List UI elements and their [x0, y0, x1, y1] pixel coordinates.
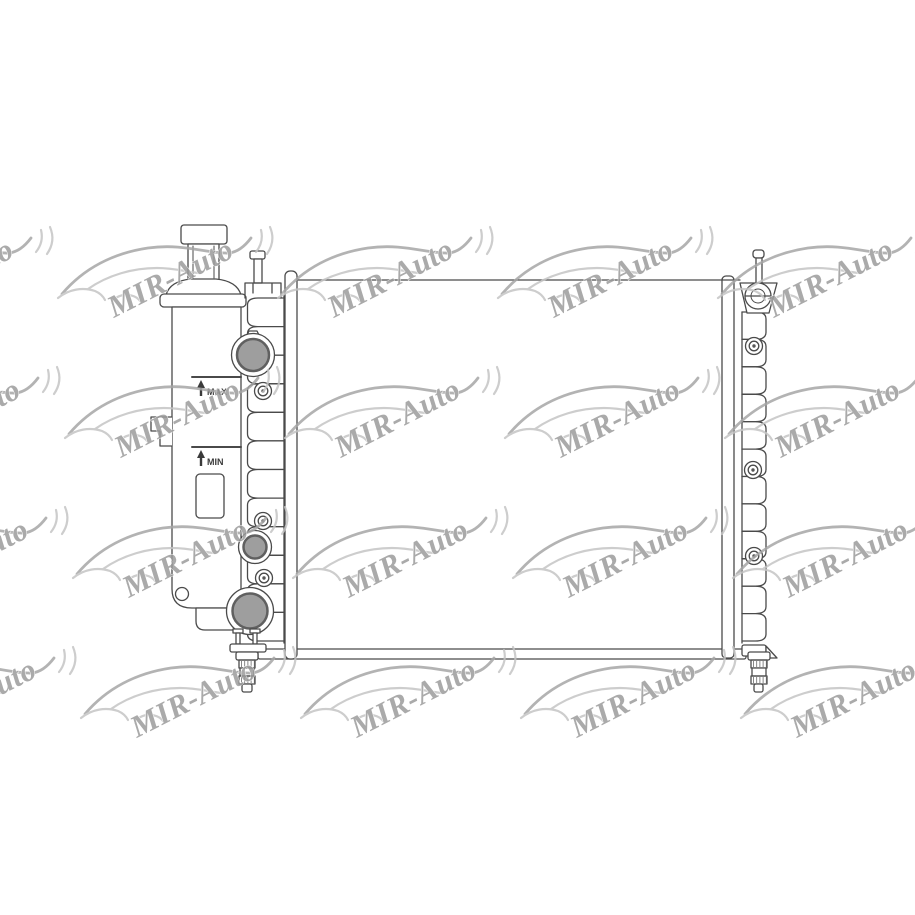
right-tank-segment [742, 422, 766, 449]
right-tank-segment [742, 586, 766, 613]
right-tank-segment [742, 312, 766, 339]
watermark-instance [81, 647, 295, 745]
left-side-plate [285, 271, 297, 659]
min-label: MIN [207, 457, 224, 467]
bolt-boss [262, 576, 265, 579]
left-tank-segment [248, 470, 285, 499]
left-tank-segment [248, 441, 285, 470]
plug-middle [752, 668, 766, 676]
watermark-layer [0, 227, 915, 745]
watermark-instance [521, 647, 735, 745]
tank-nub [176, 588, 189, 601]
hose-port-top [237, 339, 269, 371]
radiator-drawing: MAX MIN [151, 225, 777, 692]
right-tank-segment [742, 614, 766, 641]
drain-plug-right [748, 652, 770, 692]
left-tank-segment [248, 298, 285, 327]
watermark-instance [293, 507, 507, 605]
right-tank-segment [742, 504, 766, 531]
radiator-product-image: MIR-Auto [0, 0, 915, 915]
watermark-instance [0, 367, 59, 465]
watermark-instance [0, 647, 75, 745]
bolt-boss [752, 344, 755, 347]
tank-flange [160, 294, 246, 307]
watermark-instance [0, 507, 67, 605]
overflow-pin-head [753, 250, 764, 258]
right-tank-segment [742, 367, 766, 394]
watermark-instance [301, 647, 515, 745]
watermark-instance [0, 227, 52, 325]
bolt-boss [751, 468, 754, 471]
pipe-clamp [245, 283, 281, 298]
bracket-prong [253, 633, 257, 644]
bleed-pipe [254, 259, 262, 283]
watermark-instance [505, 367, 719, 465]
bleed-pipe-tip [250, 251, 265, 259]
bracket-prong [236, 633, 240, 644]
left-tank-segment [248, 412, 285, 441]
right-side-plate [722, 276, 734, 658]
watermark-instance [513, 507, 727, 605]
plug-flange [748, 652, 770, 660]
right-tank-segment [742, 477, 766, 504]
spec-sticker [196, 474, 224, 518]
watermark-instance [278, 227, 492, 325]
hose-port-bottom [233, 594, 268, 629]
watermark-instance [285, 367, 499, 465]
plug-tip [754, 684, 763, 692]
bracket-bar [230, 644, 266, 652]
watermark-instance [498, 227, 712, 325]
